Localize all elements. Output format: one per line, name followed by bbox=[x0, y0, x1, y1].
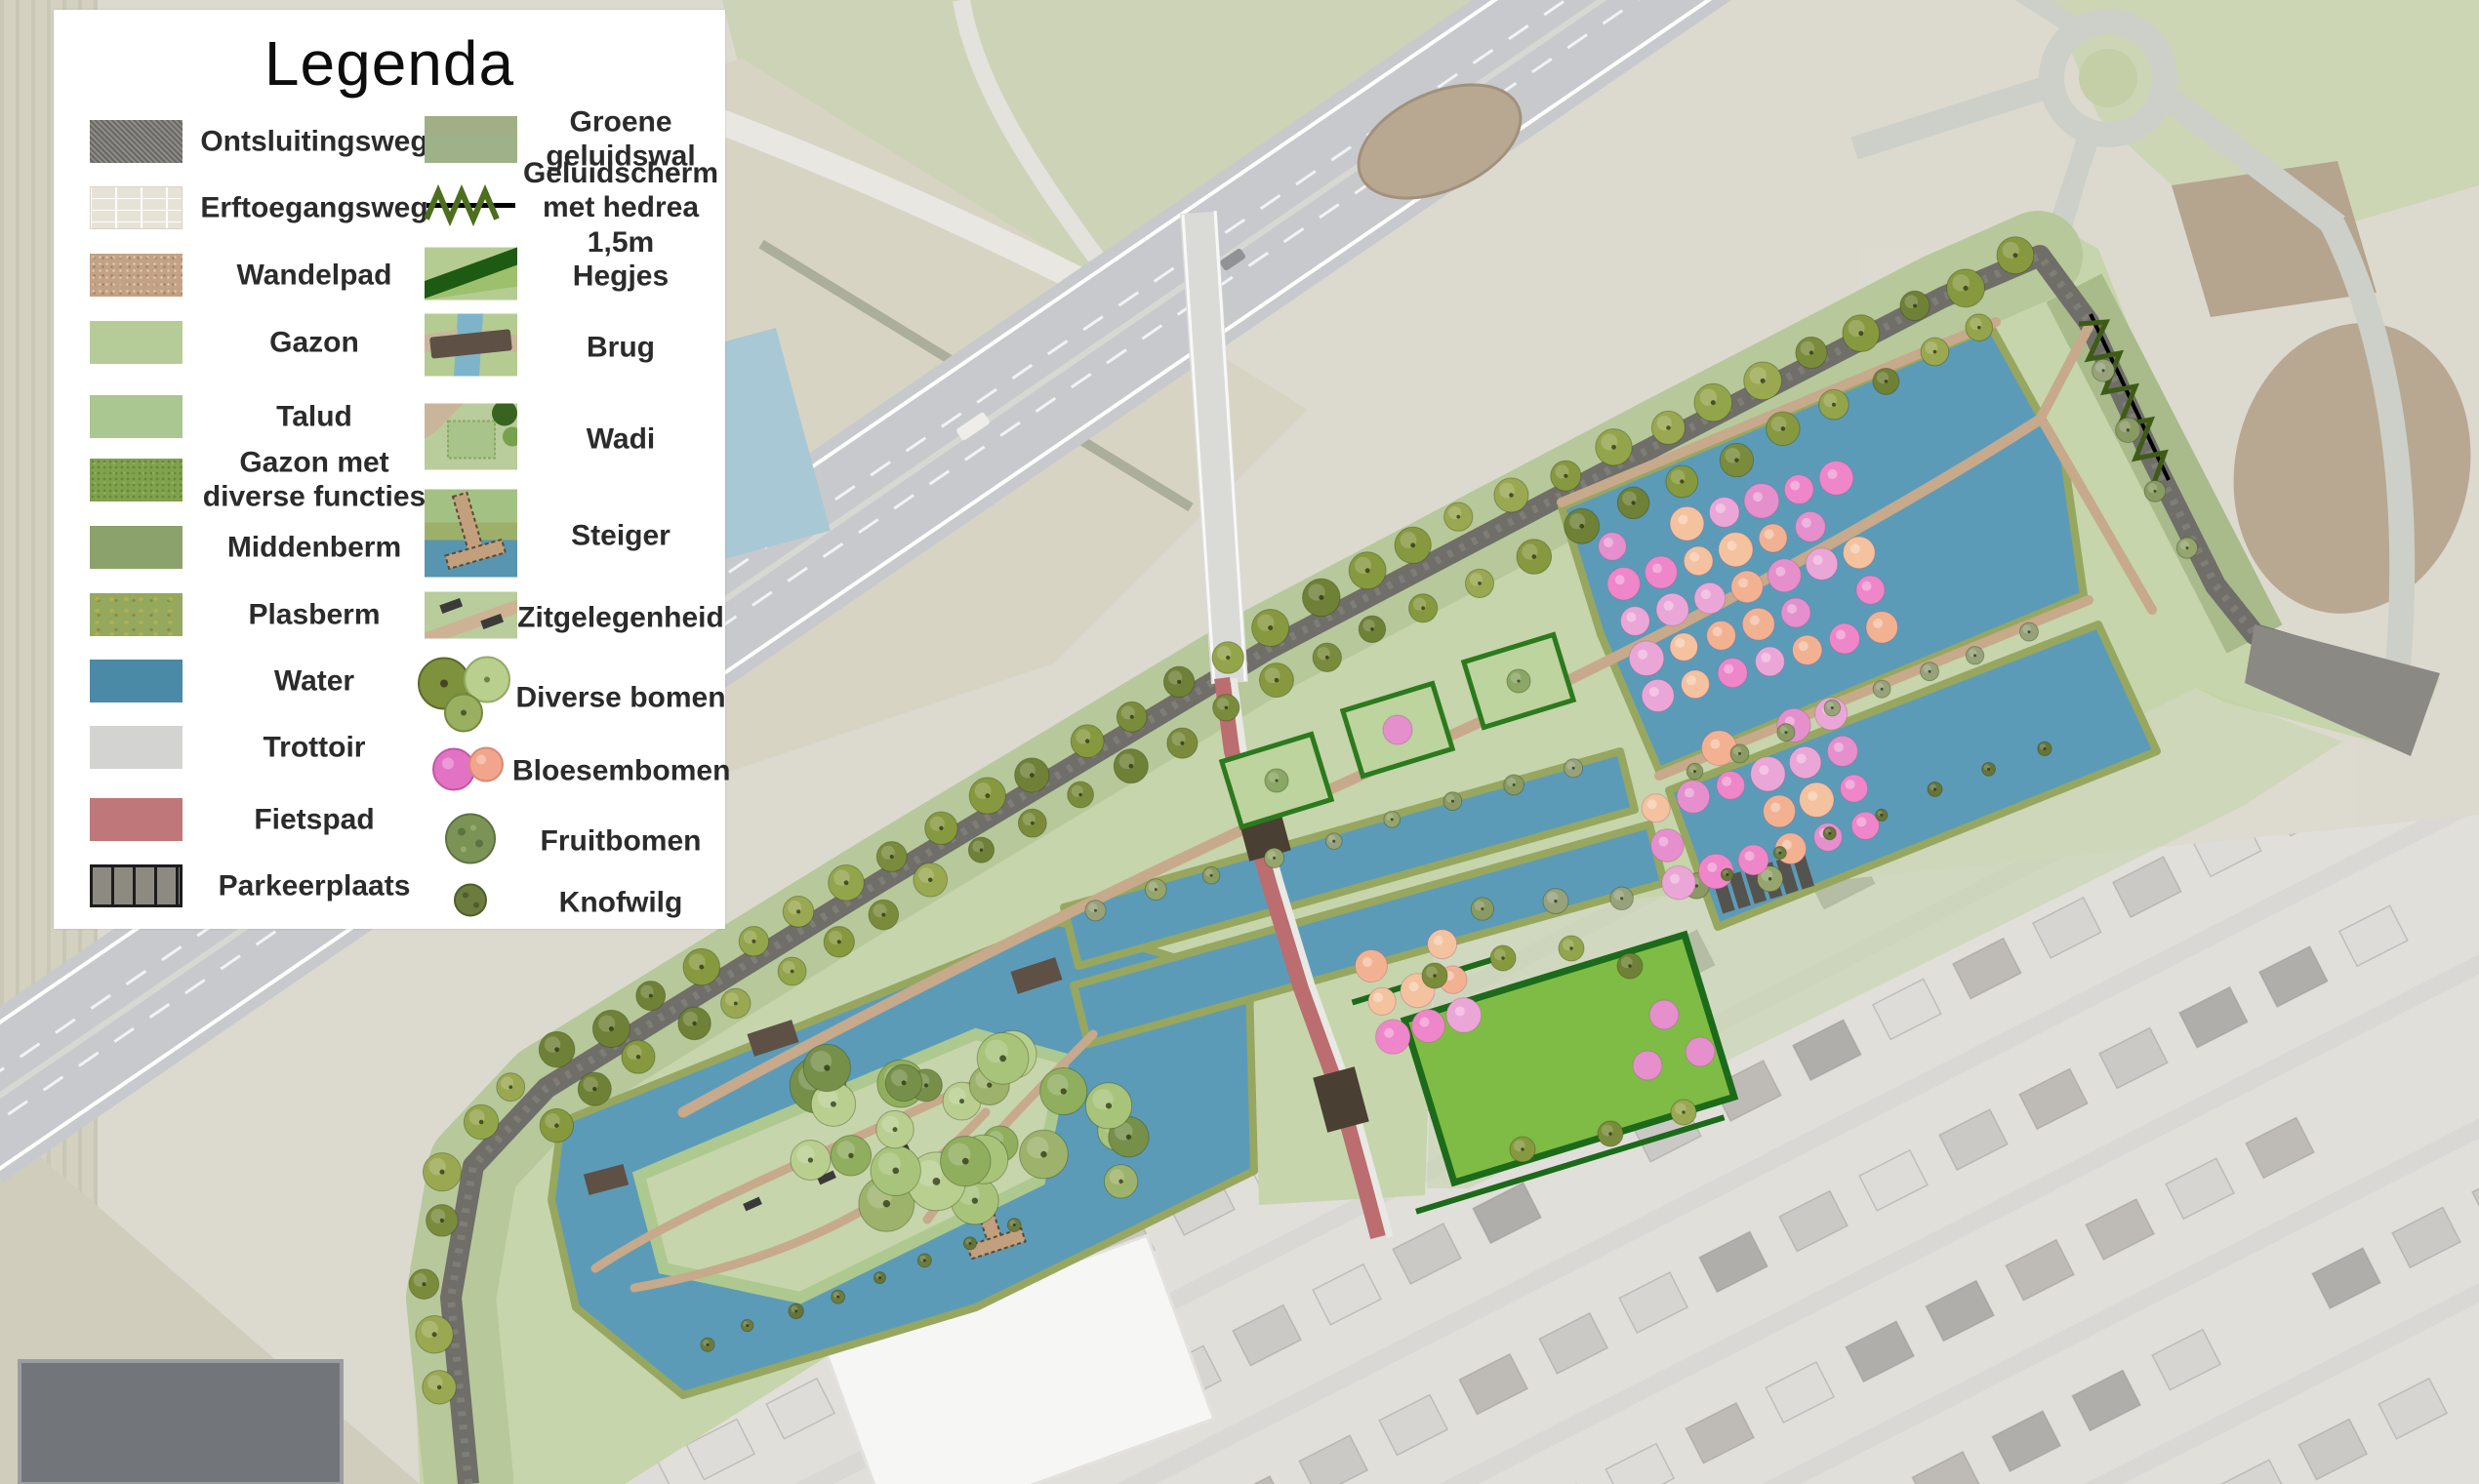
tree-cluster-icon bbox=[413, 655, 520, 737]
wadi-icon bbox=[425, 404, 517, 470]
legend-label: Parkeerplaats bbox=[198, 868, 430, 902]
steiger-swatch bbox=[425, 490, 517, 582]
erftoegangsweg-swatch bbox=[90, 186, 183, 229]
legend-label: Ontsluitingsweg bbox=[198, 124, 430, 158]
brug-swatch bbox=[425, 314, 517, 381]
legend-label: Zitgelegenheid bbox=[512, 600, 729, 634]
blossom-icon bbox=[425, 743, 517, 794]
jetty-icon bbox=[425, 490, 517, 578]
planting-plan-screenshot: Legenda Ontsluitingsweg Erftoegangsweg W… bbox=[0, 0, 2479, 1484]
legend-label: Knofwilg bbox=[512, 885, 729, 919]
zigzag-icon bbox=[425, 180, 517, 231]
small-tree-icon bbox=[425, 882, 517, 919]
solar-roof-building bbox=[20, 1361, 342, 1484]
bloesembomen-swatch bbox=[425, 743, 517, 799]
legend-label: Wadi bbox=[512, 421, 729, 456]
fruitbomen-swatch bbox=[425, 811, 517, 872]
legend-label: Diverse bomen bbox=[512, 680, 729, 714]
zitgelegenheid-swatch bbox=[425, 592, 517, 644]
parkeerplaats-swatch bbox=[90, 864, 183, 907]
middenberm-swatch bbox=[90, 526, 183, 569]
legend-label: Erftoegangsweg bbox=[198, 190, 430, 224]
groene-geluidswal-swatch bbox=[425, 116, 517, 163]
talud-swatch bbox=[90, 395, 183, 438]
legend-label: Water bbox=[198, 663, 430, 698]
legend-label: Hegjes bbox=[512, 259, 729, 293]
legend-label: Talud bbox=[198, 399, 430, 433]
gazon-swatch bbox=[90, 321, 183, 364]
legend-panel: Legenda Ontsluitingsweg Erftoegangsweg W… bbox=[54, 10, 725, 929]
legend-label: Middenberm bbox=[198, 530, 430, 564]
diverse-bomen-swatch bbox=[413, 655, 520, 742]
legend-label: Geluidscherm met hedrea 1,5m bbox=[512, 156, 729, 260]
ontsluitingsweg-swatch bbox=[90, 120, 183, 163]
legend-label: Fruitbomen bbox=[512, 823, 729, 858]
legend-label: Wandelpad bbox=[198, 258, 430, 292]
plasberm-swatch bbox=[90, 593, 183, 636]
trottoir-swatch bbox=[90, 726, 183, 769]
legend-label: Steiger bbox=[512, 518, 729, 552]
knofwilg-swatch bbox=[425, 882, 517, 924]
wadi-swatch bbox=[425, 404, 517, 475]
wandelpad-swatch bbox=[90, 254, 183, 297]
geluidscherm-swatch bbox=[425, 180, 517, 236]
legend-label: Plasberm bbox=[198, 597, 430, 631]
legend-label: Gazon bbox=[198, 325, 430, 359]
legend-label: Gazon met diverse functies bbox=[198, 446, 430, 515]
water-swatch bbox=[90, 660, 183, 702]
fruit-tree-icon bbox=[425, 811, 517, 867]
hegjes-swatch bbox=[425, 248, 517, 305]
bridge-icon bbox=[425, 314, 517, 377]
bench-icon bbox=[425, 592, 517, 639]
legend-label: Trottoir bbox=[198, 730, 430, 764]
gazon-diverse-functies-swatch bbox=[90, 459, 183, 501]
hedge-icon bbox=[425, 248, 517, 301]
legend-label: Fietspad bbox=[198, 802, 430, 836]
fietspad-swatch bbox=[90, 798, 183, 841]
legend-title: Legenda bbox=[54, 27, 725, 100]
legend-label: Brug bbox=[512, 330, 729, 364]
legend-label: Bloesembomen bbox=[512, 753, 729, 787]
